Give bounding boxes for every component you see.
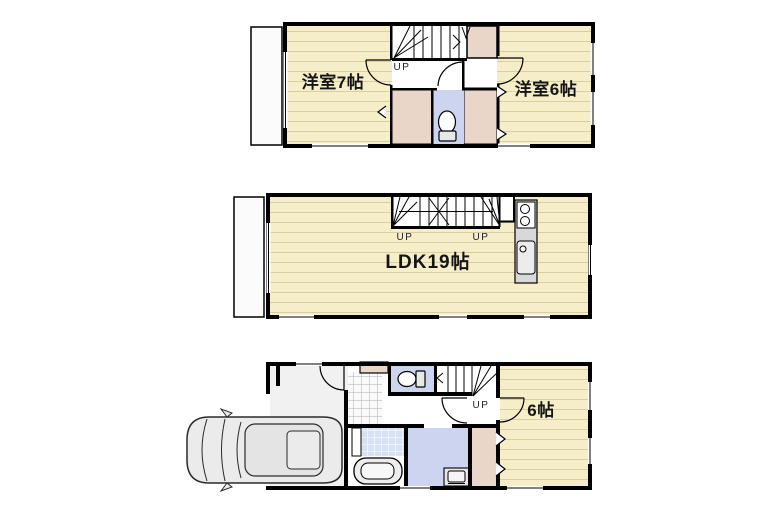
bedroom-floor xyxy=(500,366,588,486)
car-icon xyxy=(187,409,342,491)
closet xyxy=(392,90,432,144)
stairs-up-label-middle-right: UP xyxy=(467,233,495,243)
stair-landing xyxy=(500,197,514,222)
stairs-up-label-top: UP xyxy=(388,63,416,73)
closet xyxy=(467,26,497,58)
closet xyxy=(464,88,497,144)
stove-icon xyxy=(517,202,535,228)
balcony xyxy=(251,27,282,145)
room-label-west6: 洋室6帖 xyxy=(501,81,591,98)
closet xyxy=(472,426,496,486)
toilet-icon xyxy=(398,371,425,387)
room-label-west7: 洋室7帖 xyxy=(288,74,378,91)
balcony xyxy=(234,197,264,317)
floor-bottom-plan xyxy=(185,360,592,492)
room-label-6jo: 6帖 xyxy=(506,402,576,419)
room-label-ldk: LDK19帖 xyxy=(363,253,493,272)
stairs-up-label-bottom: UP xyxy=(467,401,495,411)
toilet-icon xyxy=(439,111,457,141)
stairs-up-label-middle-left: UP xyxy=(391,233,419,243)
kitchen-counter xyxy=(515,200,537,283)
floorplan-image: 洋室7帖 洋室6帖 UP LDK19帖 UP UP 6帖 UP xyxy=(0,0,778,512)
washbasin-icon xyxy=(444,468,469,486)
entrance-tile xyxy=(348,372,382,424)
kitchen-sink-icon xyxy=(517,241,535,274)
